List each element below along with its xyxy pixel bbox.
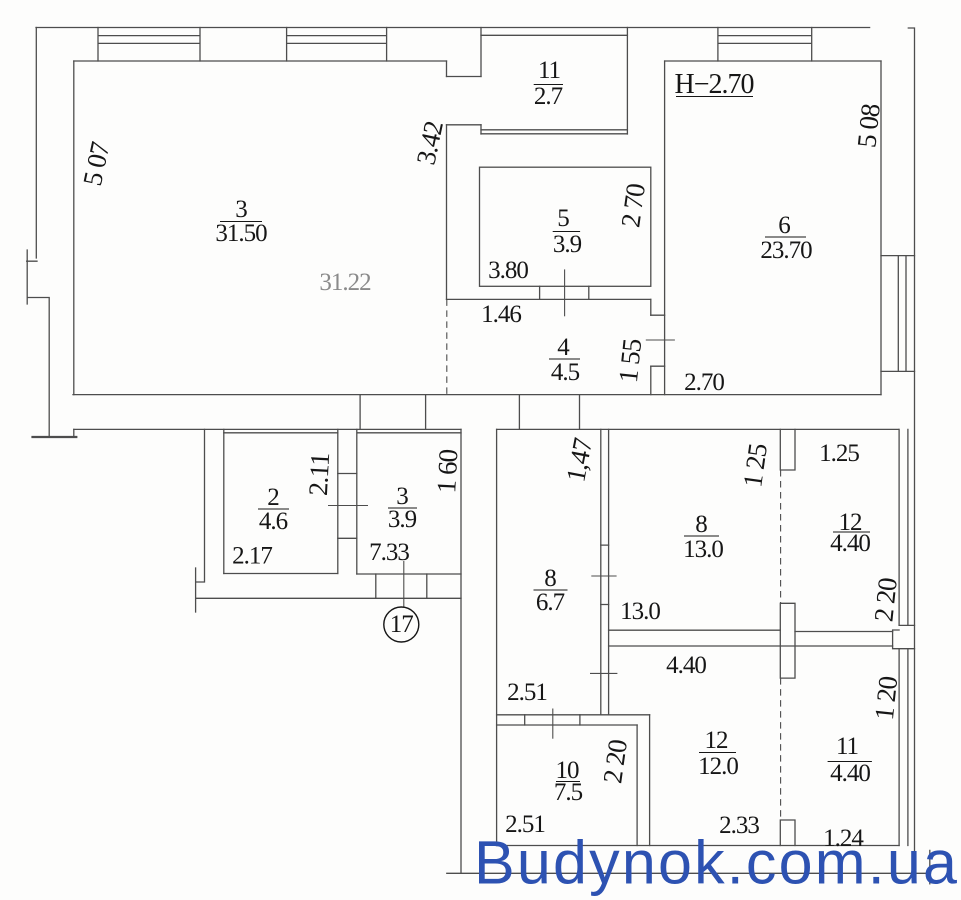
- svg-text:11: 11: [836, 733, 858, 760]
- svg-text:2.7: 2.7: [534, 83, 563, 110]
- svg-text:13.0: 13.0: [683, 536, 723, 563]
- svg-text:4.40: 4.40: [830, 530, 870, 557]
- svg-text:2: 2: [267, 484, 279, 511]
- svg-text:1 25: 1 25: [737, 442, 773, 489]
- svg-text:Н−2.70: Н−2.70: [674, 69, 753, 100]
- svg-text:1.25: 1.25: [819, 440, 859, 467]
- svg-text:2.51: 2.51: [507, 679, 547, 706]
- svg-text:1.46: 1.46: [481, 301, 521, 328]
- svg-text:13.0: 13.0: [620, 598, 660, 625]
- svg-text:3.80: 3.80: [488, 257, 528, 284]
- svg-text:3.9: 3.9: [388, 506, 417, 533]
- svg-text:2.17: 2.17: [232, 543, 272, 570]
- svg-text:7.5: 7.5: [554, 779, 583, 806]
- svg-text:31.22: 31.22: [319, 269, 371, 296]
- svg-text:2 70: 2 70: [615, 182, 651, 229]
- svg-text:3: 3: [235, 196, 247, 223]
- svg-text:6: 6: [778, 212, 790, 239]
- svg-text:1 55: 1 55: [613, 337, 647, 384]
- svg-text:5: 5: [557, 205, 569, 232]
- svg-text:17: 17: [390, 611, 414, 638]
- svg-text:1 20: 1 20: [869, 675, 903, 722]
- svg-text:31.50: 31.50: [215, 220, 267, 247]
- svg-text:2.70: 2.70: [684, 369, 724, 396]
- svg-text:4.5: 4.5: [551, 359, 580, 386]
- svg-text:1 60: 1 60: [431, 449, 463, 494]
- svg-text:2.11: 2.11: [303, 453, 335, 497]
- svg-text:2 20: 2 20: [868, 576, 902, 623]
- svg-text:7.33: 7.33: [369, 539, 409, 566]
- svg-text:4.6: 4.6: [259, 508, 288, 535]
- svg-text:3.9: 3.9: [553, 231, 582, 258]
- svg-text:12.0: 12.0: [698, 753, 738, 780]
- svg-text:12: 12: [705, 727, 729, 754]
- svg-text:8: 8: [695, 511, 707, 538]
- svg-text:23.70: 23.70: [760, 237, 812, 264]
- svg-text:11: 11: [538, 57, 560, 84]
- svg-text:5 08: 5 08: [851, 102, 885, 149]
- svg-text:6.7: 6.7: [536, 589, 565, 616]
- svg-text:Budynok.com.ua: Budynok.com.ua: [474, 829, 959, 897]
- svg-text:4.40: 4.40: [830, 760, 870, 787]
- svg-text:2 20: 2 20: [597, 738, 633, 785]
- svg-text:4: 4: [557, 334, 570, 361]
- svg-text:8: 8: [544, 565, 556, 592]
- svg-text:4.40: 4.40: [666, 652, 706, 679]
